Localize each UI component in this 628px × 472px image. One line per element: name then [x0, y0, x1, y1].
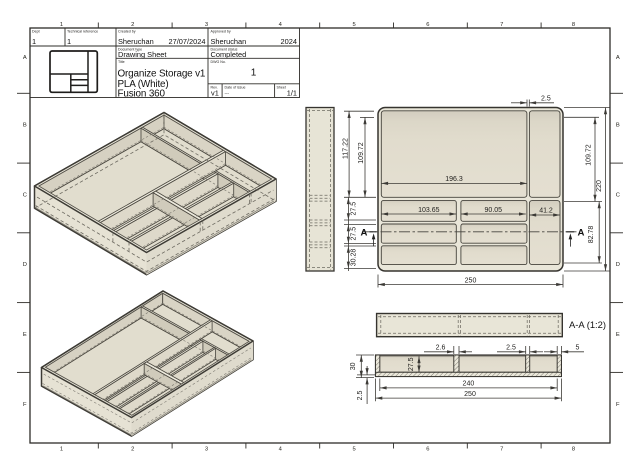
svg-text:3: 3: [205, 22, 208, 28]
svg-text:7: 7: [500, 447, 503, 453]
svg-text:v1: v1: [211, 89, 219, 98]
svg-text:Completed: Completed: [211, 50, 247, 59]
svg-text:F: F: [616, 402, 620, 408]
svg-text:D: D: [23, 262, 27, 268]
svg-text:2: 2: [131, 22, 134, 28]
svg-text:Dept: Dept: [32, 30, 40, 34]
svg-text:A: A: [361, 227, 368, 238]
svg-text:27.5: 27.5: [408, 357, 415, 371]
svg-text:Created by: Created by: [118, 30, 136, 34]
svg-text:27/07/2024: 27/07/2024: [169, 37, 206, 46]
svg-text:Date of issue: Date of issue: [225, 86, 246, 90]
svg-text:C: C: [616, 193, 620, 199]
svg-text:8: 8: [572, 447, 575, 453]
svg-text:A: A: [23, 55, 27, 61]
svg-text:117.22: 117.22: [342, 138, 349, 159]
svg-text:109.72: 109.72: [585, 144, 592, 166]
svg-text:6: 6: [426, 22, 429, 28]
svg-text:D: D: [616, 262, 620, 268]
svg-text:Technical reference: Technical reference: [67, 30, 98, 34]
svg-text:Organize Storage v1: Organize Storage v1: [118, 68, 206, 79]
svg-text:Title: Title: [118, 60, 125, 64]
svg-text:1: 1: [251, 68, 257, 79]
svg-text:2.5: 2.5: [541, 96, 551, 103]
svg-text:220: 220: [596, 180, 603, 192]
svg-text:1/1: 1/1: [287, 89, 297, 98]
svg-text:7: 7: [500, 22, 503, 28]
svg-text:5: 5: [576, 345, 580, 352]
svg-text:A: A: [578, 227, 585, 238]
svg-text:---: ---: [225, 91, 230, 96]
svg-text:A: A: [616, 55, 620, 61]
svg-text:2.5: 2.5: [357, 391, 364, 401]
svg-text:250: 250: [464, 391, 476, 398]
svg-text:Sheruchan: Sheruchan: [211, 37, 247, 46]
svg-text:F: F: [23, 402, 27, 408]
svg-text:109.72: 109.72: [358, 142, 365, 164]
svg-text:90.05: 90.05: [485, 207, 503, 214]
svg-text:DWG No.: DWG No.: [211, 60, 226, 64]
svg-text:B: B: [23, 123, 27, 129]
svg-text:5: 5: [352, 447, 355, 453]
svg-text:C: C: [23, 193, 27, 199]
svg-text:240: 240: [463, 381, 475, 388]
svg-text:27.5: 27.5: [351, 227, 358, 241]
svg-text:30: 30: [350, 362, 357, 370]
svg-text:4: 4: [279, 22, 283, 28]
svg-text:5: 5: [352, 22, 355, 28]
svg-text:27.5: 27.5: [351, 202, 358, 216]
svg-text:250: 250: [465, 277, 477, 284]
svg-text:41.2: 41.2: [539, 208, 553, 215]
svg-text:82.78: 82.78: [588, 226, 595, 244]
svg-text:2: 2: [131, 447, 134, 453]
svg-text:E: E: [23, 332, 27, 338]
svg-text:2.5: 2.5: [506, 345, 516, 352]
svg-text:1: 1: [60, 447, 63, 453]
svg-text:4: 4: [279, 447, 283, 453]
svg-text:A-A (1:2): A-A (1:2): [569, 319, 606, 330]
svg-text:Fusion 360: Fusion 360: [118, 89, 166, 100]
svg-text:Drawing Sheet: Drawing Sheet: [118, 50, 166, 59]
svg-text:1: 1: [60, 22, 63, 28]
svg-text:Sheruchan: Sheruchan: [118, 37, 154, 46]
svg-text:2024: 2024: [281, 37, 297, 46]
svg-text:B: B: [616, 123, 620, 129]
svg-text:1: 1: [67, 37, 71, 46]
svg-text:3: 3: [205, 447, 208, 453]
svg-text:Approved by: Approved by: [211, 30, 231, 34]
svg-text:8: 8: [572, 22, 575, 28]
svg-text:1: 1: [32, 37, 36, 46]
svg-text:30.28: 30.28: [351, 249, 358, 267]
svg-text:E: E: [616, 332, 620, 338]
svg-text:6: 6: [426, 447, 429, 453]
svg-text:Sheet: Sheet: [277, 86, 286, 90]
svg-text:2.6: 2.6: [436, 345, 446, 352]
svg-text:103.65: 103.65: [418, 207, 440, 214]
svg-text:196.3: 196.3: [445, 176, 463, 183]
